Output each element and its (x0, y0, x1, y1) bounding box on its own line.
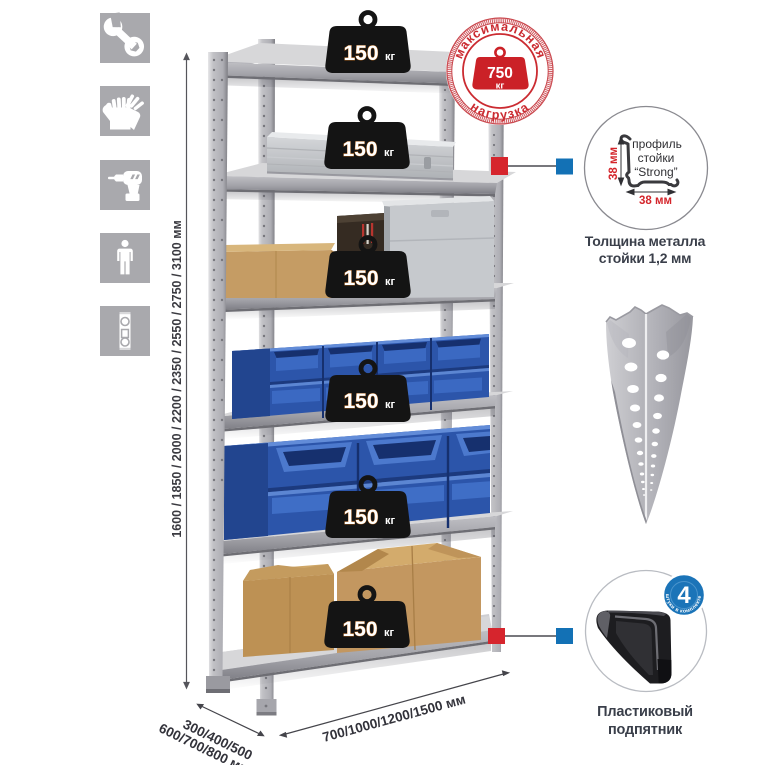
svg-text:150: 150 (343, 390, 378, 413)
svg-text:стойки: стойки (638, 151, 675, 165)
svg-text:750: 750 (487, 65, 513, 82)
svg-text:1600 / 1850 / 2000 / 2200 / 23: 1600 / 1850 / 2000 / 2200 / 2350 / 2550 … (170, 220, 184, 537)
svg-text:Толщина металла: Толщина металла (585, 233, 706, 249)
svg-text:150: 150 (343, 506, 378, 529)
svg-text:“Strong”: “Strong” (634, 165, 677, 179)
svg-text:150: 150 (342, 618, 377, 641)
svg-text:подпятник: подпятник (608, 722, 683, 738)
svg-text:кг: кг (496, 81, 505, 92)
svg-text:кг: кг (385, 515, 396, 527)
svg-text:4: 4 (677, 582, 691, 609)
svg-text:кг: кг (384, 147, 395, 159)
svg-text:кг: кг (385, 399, 396, 411)
svg-text:Пластиковый: Пластиковый (597, 704, 693, 720)
svg-text:150: 150 (343, 42, 378, 65)
svg-text:стойки 1,2 мм: стойки 1,2 мм (599, 250, 692, 266)
svg-text:профиль: профиль (632, 137, 682, 151)
svg-text:38 мм: 38 мм (608, 147, 620, 180)
svg-text:кг: кг (384, 627, 395, 639)
svg-text:150: 150 (342, 138, 377, 161)
svg-text:38 мм: 38 мм (639, 195, 672, 207)
svg-text:150: 150 (343, 267, 378, 290)
svg-text:кг: кг (385, 51, 396, 63)
svg-text:кг: кг (385, 276, 396, 288)
